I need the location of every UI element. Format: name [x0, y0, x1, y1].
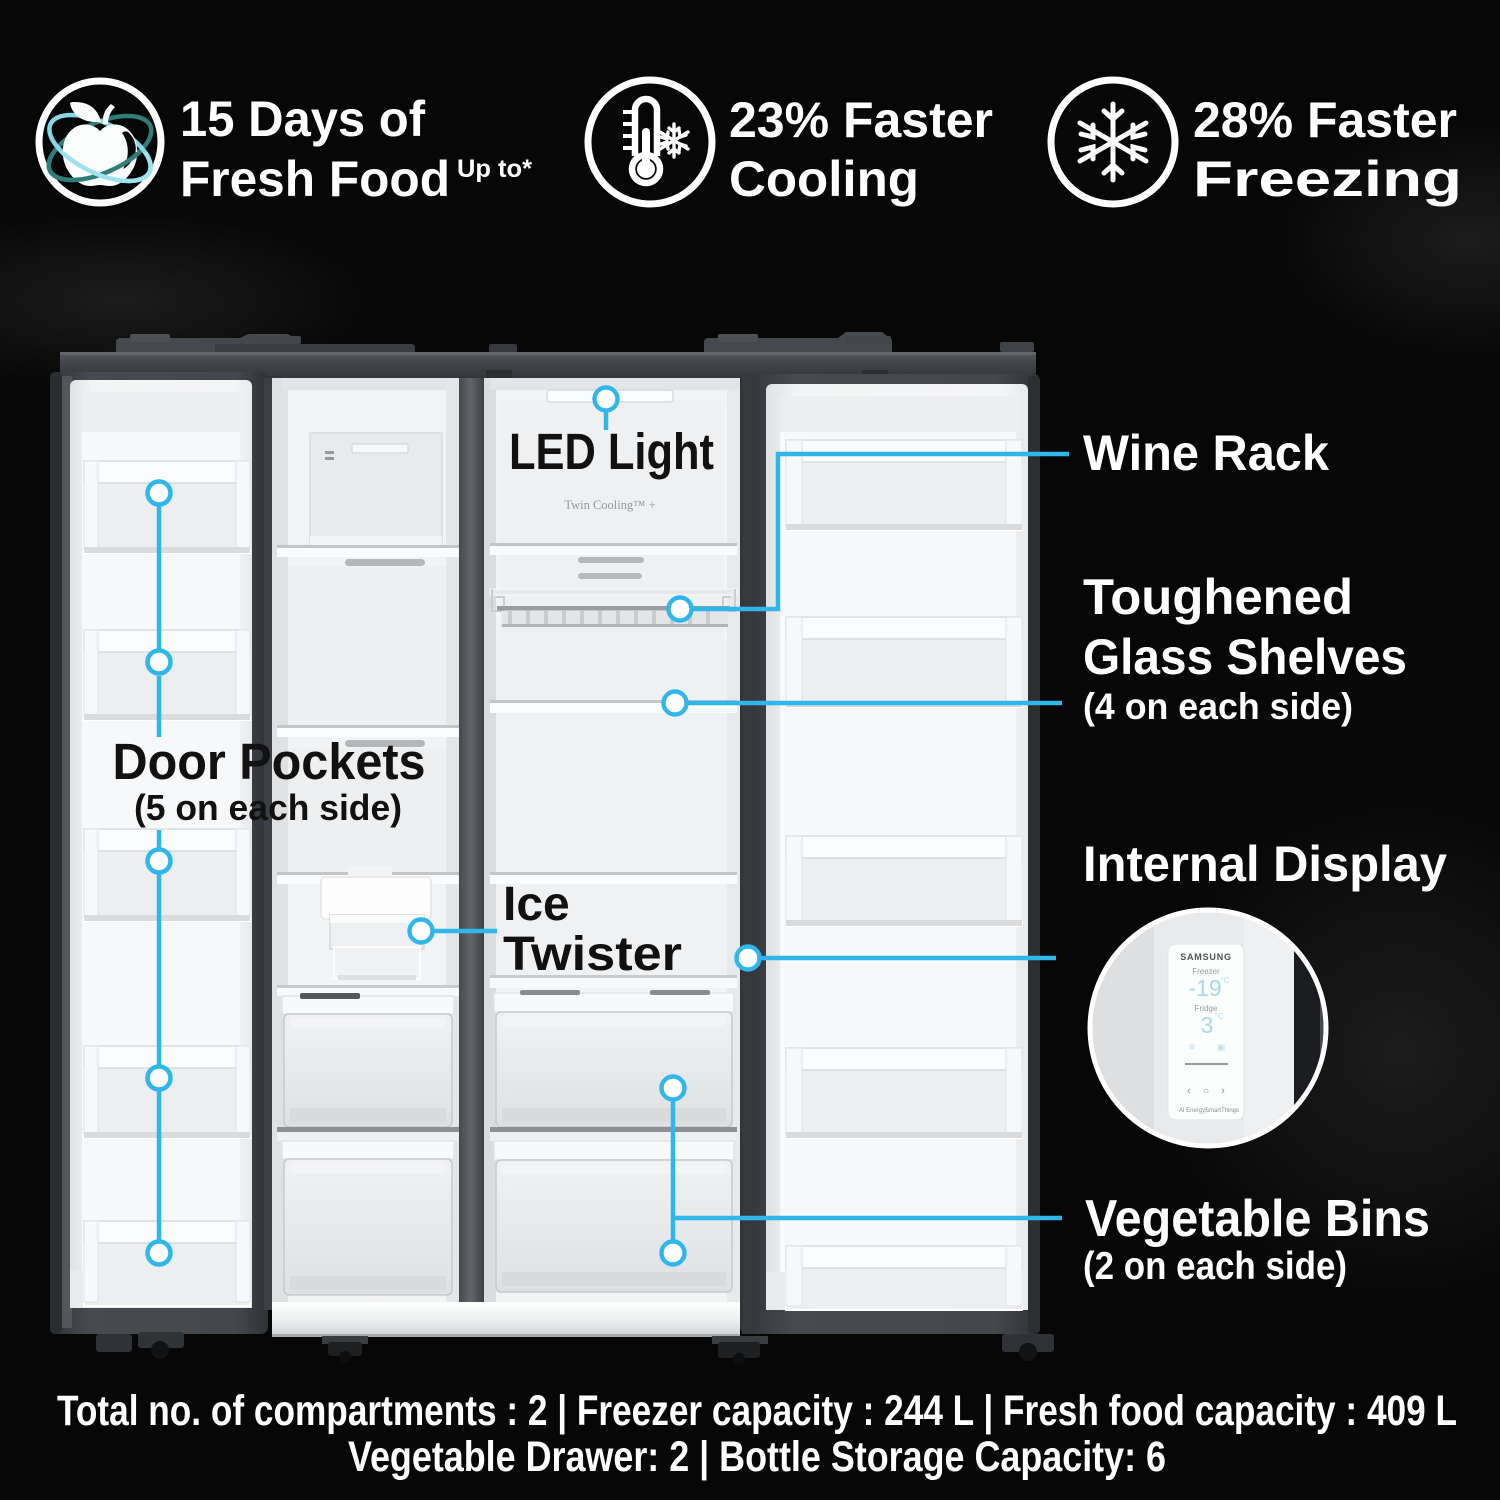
- svg-text:°C: °C: [1215, 1012, 1224, 1021]
- svg-text:AI Energy: AI Energy: [1179, 1108, 1205, 1114]
- svg-text:-19: -19: [1188, 975, 1221, 1001]
- svg-text:Ice: Ice: [503, 878, 570, 931]
- svg-text:Door Pockets: Door Pockets: [113, 733, 426, 790]
- svg-text:‹: ‹: [1187, 1085, 1191, 1097]
- svg-text:▣: ▣: [1217, 1042, 1226, 1052]
- svg-text:(5 on each side): (5 on each side): [134, 787, 402, 828]
- svg-text:3: 3: [1201, 1012, 1214, 1038]
- svg-text:23% Faster: 23% Faster: [729, 92, 993, 148]
- svg-text:SmartThings: SmartThings: [1205, 1108, 1239, 1114]
- svg-text:Toughened: Toughened: [1083, 569, 1353, 625]
- svg-text:Twin Cooling™ +: Twin Cooling™ +: [564, 498, 655, 512]
- svg-text:(2 on each side): (2 on each side): [1083, 1245, 1347, 1288]
- svg-text:Internal Display: Internal Display: [1083, 836, 1447, 892]
- svg-text:Glass Shelves: Glass Shelves: [1083, 629, 1407, 685]
- svg-text:28% Faster: 28% Faster: [1193, 92, 1457, 148]
- svg-text:Freezing: Freezing: [1193, 151, 1462, 207]
- svg-text:SAMSUNG: SAMSUNG: [1180, 952, 1232, 962]
- svg-text:Cooling: Cooling: [729, 151, 919, 207]
- svg-text:❄: ❄: [1188, 1042, 1196, 1052]
- svg-text:(4 on each side): (4 on each side): [1083, 686, 1353, 727]
- svg-text:Twister: Twister: [503, 928, 682, 981]
- svg-text:Vegetable Bins: Vegetable Bins: [1085, 1190, 1430, 1248]
- svg-text:Vegetable Drawer: 2 | Bottle S: Vegetable Drawer: 2 | Bottle Storage Cap…: [348, 1433, 1166, 1481]
- svg-text:Total no. of compartments : 2: Total no. of compartments : 2 | Freezer …: [57, 1387, 1457, 1435]
- svg-text:Fresh Food: Fresh Food: [180, 151, 450, 207]
- svg-text:°C: °C: [1221, 976, 1230, 985]
- svg-text:Wine Rack: Wine Rack: [1083, 425, 1329, 481]
- svg-text:15 Days of: 15 Days of: [180, 91, 425, 147]
- svg-text:Up to*: Up to*: [457, 155, 532, 183]
- svg-text:LED Light: LED Light: [509, 423, 714, 480]
- svg-text:›: ›: [1221, 1085, 1225, 1097]
- svg-text:○: ○: [1203, 1086, 1209, 1097]
